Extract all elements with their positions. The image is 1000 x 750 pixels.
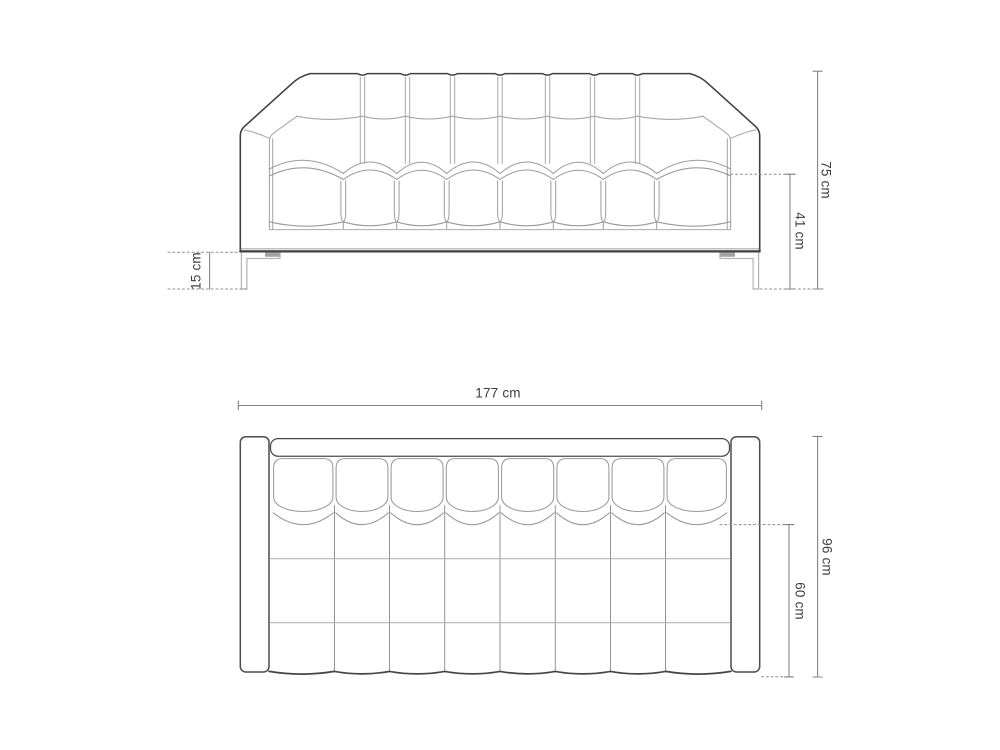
sofa-front-view bbox=[168, 71, 823, 289]
top-armrest-left bbox=[240, 437, 269, 672]
dim-label-total-height: 75 cm bbox=[819, 161, 834, 199]
front-backrest-seam bbox=[297, 116, 704, 119]
dim-label-total-width: 177 cm bbox=[475, 386, 520, 401]
front-leg-bracket-left bbox=[265, 253, 280, 257]
front-extension-dashes bbox=[168, 174, 823, 289]
top-back-cushions bbox=[274, 459, 727, 512]
front-backrest-channels bbox=[360, 77, 639, 164]
top-armrest-right bbox=[731, 437, 760, 672]
front-leg-bracket-right bbox=[721, 253, 736, 257]
sofa-top-view bbox=[238, 401, 822, 677]
sofa-dimension-diagram: 75 cm 41 cm 15 cm 177 cm 96 cm 60 cm bbox=[0, 0, 1000, 750]
front-legs bbox=[241, 252, 758, 289]
dim-label-total-depth: 96 cm bbox=[820, 538, 835, 576]
dim-label-seat-height: 41 cm bbox=[793, 212, 808, 250]
front-backrest-top-outline bbox=[292, 74, 709, 84]
top-seat-grid-verticals bbox=[335, 506, 666, 672]
front-seat-platform bbox=[241, 230, 759, 249]
front-seat-scallop-upper bbox=[269, 160, 730, 173]
diagram-canvas bbox=[0, 0, 1000, 750]
top-backrest-strip bbox=[271, 439, 730, 457]
dim-label-leg-height: 15 cm bbox=[189, 252, 204, 290]
dim-label-seat-depth: 60 cm bbox=[793, 582, 808, 620]
top-front-edge bbox=[269, 671, 731, 674]
